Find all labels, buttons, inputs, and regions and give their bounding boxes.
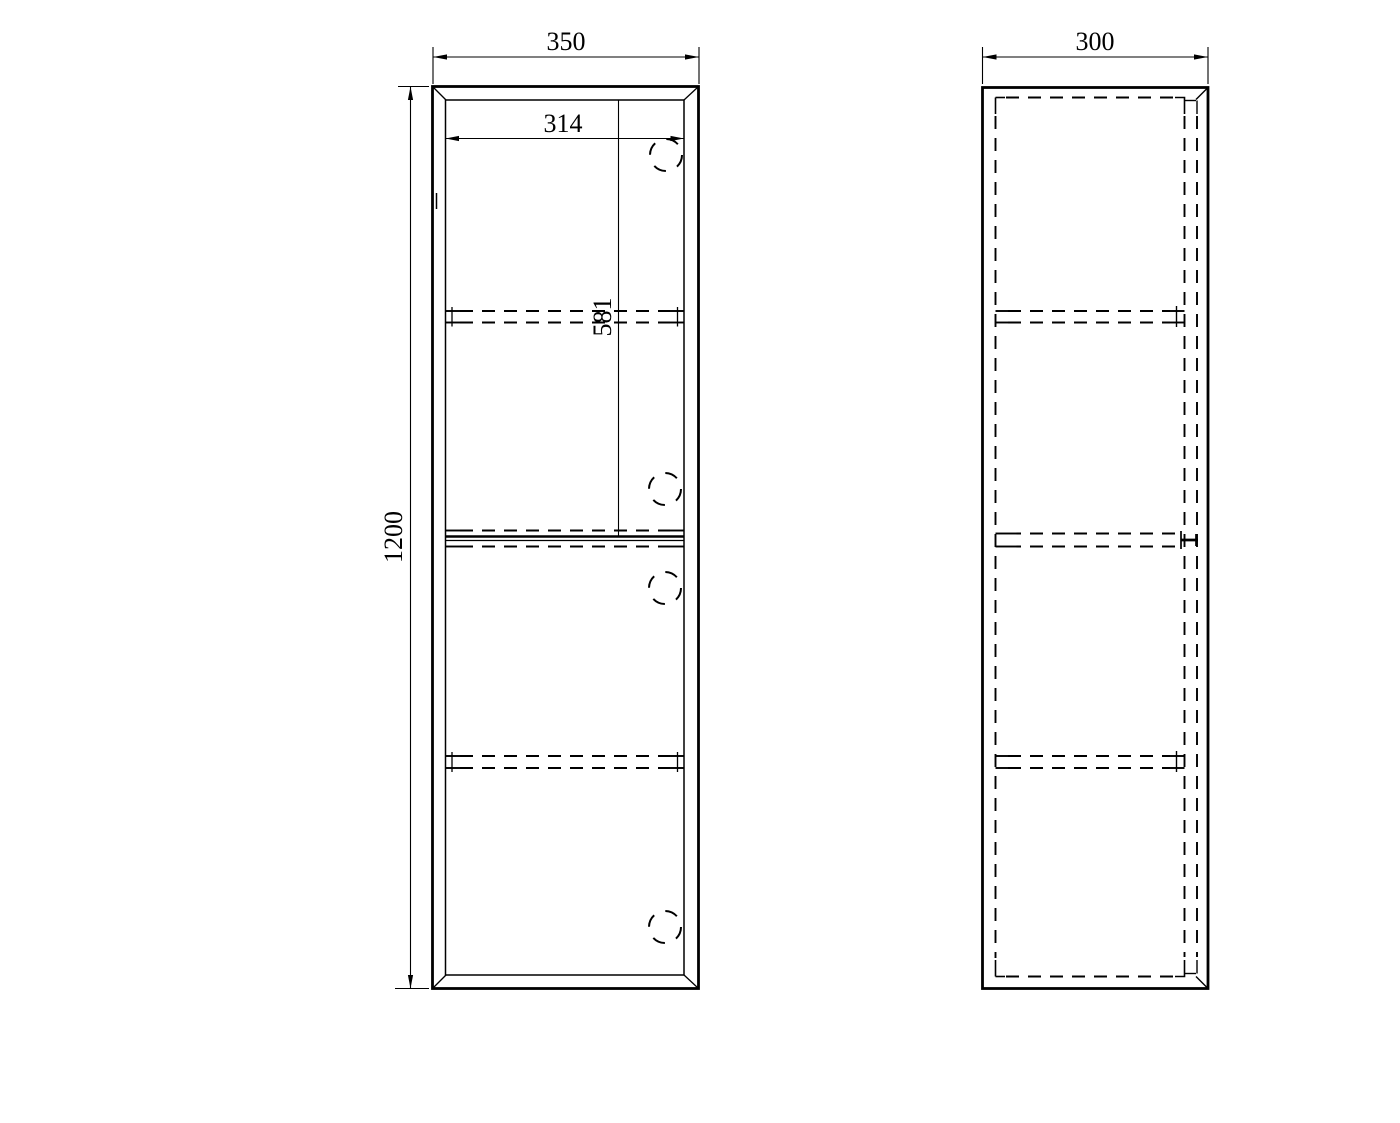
side-corner-miter-top-right (1196, 88, 1208, 100)
side-mid-divider (996, 531, 1199, 549)
dim-1200-arrow-top (408, 87, 413, 101)
drawing-sheet: 581 314 350 1200 (0, 0, 1400, 1123)
dim-1200: 1200 (379, 87, 429, 989)
side-lower-shelf-hidden (996, 751, 1185, 772)
side-upper-shelf-hidden (996, 306, 1185, 327)
front-corner-miter-bottom-left (433, 975, 446, 988)
side-bottom-right-bracket (1175, 960, 1185, 977)
hinge-cup-circle-4 (649, 911, 681, 943)
front-corner-miter-top-left (433, 87, 446, 100)
dim-300-arrow-left (983, 54, 997, 59)
front-corner-miter-bottom-right (684, 975, 698, 988)
front-view: 581 314 350 1200 (379, 27, 699, 989)
front-upper-shelf-hidden (446, 307, 685, 327)
dim-350-arrow-left (433, 54, 447, 59)
dim-300-arrow-right (1194, 54, 1208, 59)
hinge-cup-circle-1 (650, 139, 682, 171)
front-upper-door-height-label: 581 (588, 298, 617, 337)
front-height-dimension-label: 1200 (379, 511, 408, 563)
front-inner-width-label: 314 (544, 109, 583, 138)
front-width-dimension-label: 350 (547, 27, 586, 56)
dim-1200-arrow-bottom (408, 975, 413, 989)
cabinet-technical-drawing: 581 314 350 1200 (0, 0, 1400, 1123)
front-lower-shelf-hidden (446, 752, 685, 772)
dim-350: 350 (433, 27, 699, 84)
side-depth-dimension-label: 300 (1076, 27, 1115, 56)
side-view: 300 (983, 27, 1209, 989)
dim-314-arrow-left (446, 136, 460, 141)
side-corner-miter-bottom-right (1196, 977, 1208, 989)
side-outer-outline (983, 88, 1209, 989)
side-top-right-bracket (1175, 98, 1185, 115)
dim-300: 300 (983, 27, 1209, 84)
hinge-cup-circle-2 (649, 473, 681, 505)
hinge-cup-circle-3 (649, 572, 681, 604)
dim-350-arrow-right (685, 54, 699, 59)
front-corner-miter-top-right (684, 87, 698, 100)
dim-314-arrow-right (671, 136, 685, 141)
